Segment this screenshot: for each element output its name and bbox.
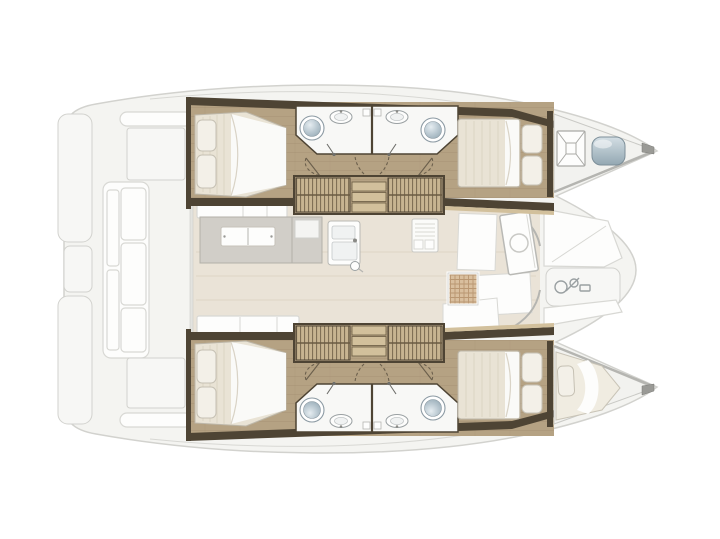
floorplan-canvas xyxy=(0,0,720,539)
forepeak-bulkhead xyxy=(547,111,553,197)
hull-aft-wall xyxy=(186,97,191,209)
aft-cabin xyxy=(195,112,286,197)
galley-appliance xyxy=(412,219,438,252)
liferaft-icon xyxy=(592,137,625,165)
transom-bench xyxy=(103,182,149,358)
saloon xyxy=(190,201,540,334)
pillow xyxy=(522,156,542,185)
hull-inner-wall-aft xyxy=(188,198,294,206)
sink-icon xyxy=(386,110,408,123)
swim-platform-port xyxy=(58,114,92,242)
pillow xyxy=(522,125,542,153)
pillow xyxy=(197,120,216,151)
companionway-steps xyxy=(294,176,444,214)
coachroof-edge-top xyxy=(120,112,192,126)
forward-cabin xyxy=(458,119,542,187)
saloon-bench-bottom xyxy=(197,316,299,334)
pillow xyxy=(197,155,216,188)
pillow xyxy=(557,366,575,397)
deck-hatch-icon xyxy=(557,131,585,166)
cockpit-pad-top xyxy=(127,128,185,180)
foredeck-pad-top xyxy=(544,209,622,267)
cockpit-pad-bottom xyxy=(127,358,185,408)
sink-icon xyxy=(330,110,352,123)
foredeck-lounge xyxy=(544,209,622,326)
faucet-icon xyxy=(353,239,357,243)
transom-center-step xyxy=(64,246,92,292)
galley-double-sink xyxy=(328,221,360,265)
coachroof-edge-bottom xyxy=(120,413,192,427)
aft-sliding-door xyxy=(190,205,193,333)
toilet-icon xyxy=(421,118,445,142)
toilet-icon xyxy=(300,116,324,140)
swim-platform-starboard xyxy=(58,296,92,424)
rattan-mat xyxy=(448,273,478,305)
dinette-table xyxy=(200,217,292,263)
